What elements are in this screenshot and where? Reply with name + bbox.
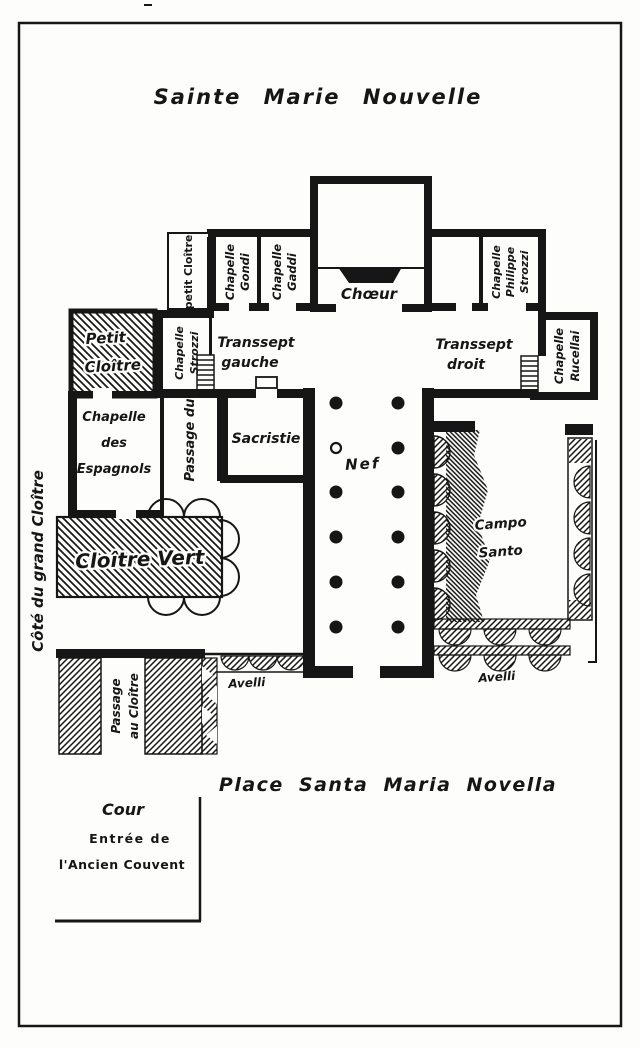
label-place: Place Santa Maria Novella — [219, 774, 557, 796]
chapelle-rucellai: Chapelle Rucellai — [521, 312, 598, 400]
passage-du-corridor: Passage du — [183, 397, 220, 481]
left-chapels: petit Cloître Chapelle Gondi Chapelle Ga… — [168, 229, 312, 311]
avelli-vertical-strip — [202, 658, 217, 754]
campo-santo: Campo Santo Avelli — [428, 421, 596, 685]
cour-entree: Cour Entrée de l'Ancien Couvent — [55, 797, 201, 921]
label-sacristie: Sacristie — [232, 431, 301, 447]
label-avelli-right: Avelli — [477, 669, 517, 686]
transept: Chapelle Strozzi Transsept gauche Transs… — [154, 310, 538, 398]
plan-title: Sainte Marie Nouvelle — [154, 85, 483, 109]
label-chapelle-rucellai-1: Chapelle — [552, 328, 566, 384]
open-pillar — [331, 443, 341, 453]
label-campo-santo-1: Campo — [474, 514, 527, 534]
label-cote-grand-cloitre: Côté du grand Cloître — [29, 470, 47, 652]
label-espagnols-2: des — [101, 436, 127, 451]
label-espagnols-1: Chapelle — [82, 410, 146, 425]
label-chapelle-philippe-strozzi-1: Chapelle — [490, 245, 503, 299]
avelli-left-row — [205, 654, 305, 672]
door-bump — [256, 377, 277, 388]
rucellai-stairs — [521, 356, 538, 392]
label-petit-cloitre-top: petit Cloître — [182, 235, 195, 310]
label-chapelle-strozzi-2: Strozzi — [188, 331, 201, 374]
label-chapelle-philippe-strozzi-3: Strozzi — [518, 250, 531, 293]
label-chapelle-strozzi-1: Chapelle — [173, 326, 186, 380]
nave-pillars — [330, 397, 405, 634]
label-nef: Nef — [345, 454, 382, 474]
chapelle-espagnols: Chapelle des Espagnols — [68, 396, 164, 519]
right-chapels: Chapelle Philippe Strozzi — [432, 229, 546, 312]
choir: Chœur — [310, 176, 432, 312]
label-passage-au-cloitre-2: au Cloître — [127, 673, 141, 739]
door-notch — [93, 388, 112, 400]
avelli-bottom-rows — [434, 619, 570, 671]
nave: Nef — [303, 388, 434, 678]
label-ancien-couvent: l'Ancien Couvent — [59, 857, 185, 872]
door-gap — [256, 388, 277, 399]
label-transsept-gauche-2: gauche — [221, 355, 278, 371]
label-espagnols-3: Espagnols — [77, 462, 152, 477]
label-chapelle-gaddi-1: Chapelle — [270, 244, 284, 300]
plan-figure: Sainte Marie Nouvelle Cloître Vert Chœur… — [0, 0, 640, 1048]
label-chapelle-gondi-2: Gondi — [238, 252, 252, 291]
label-entree: Entrée de — [89, 831, 171, 846]
label-transsept-gauche-1: Transsept — [217, 335, 296, 351]
label-cloitre-vert: Cloître Vert — [75, 545, 206, 574]
passage-au-cloitre-area: Passage au Cloître Avelli — [56, 649, 305, 754]
hatched-block-left — [59, 658, 101, 754]
label-choeur: Chœur — [341, 285, 399, 303]
label-chapelle-rucellai-2: Rucellai — [568, 330, 582, 382]
label-petit-cloitre-1: Petit — [85, 328, 127, 348]
label-passage-du: Passage du — [183, 399, 198, 482]
label-chapelle-philippe-strozzi-2: Philippe — [504, 246, 517, 297]
label-avelli-left: Avelli — [227, 675, 266, 691]
label-transsept-droit-2: droit — [447, 357, 486, 373]
cloitre-vert: Cloître Vert — [57, 517, 222, 597]
altar — [338, 267, 402, 283]
label-petit-cloitre-2: Cloître — [84, 356, 141, 377]
petit-cloitre: Petit Cloître — [68, 311, 158, 400]
label-cour: Cour — [102, 800, 145, 819]
label-passage-au-cloitre-1: Passage — [109, 678, 123, 733]
label-campo-santo-2: Santo — [478, 542, 523, 561]
door-notch — [116, 508, 136, 519]
avelli-right-bar — [568, 438, 592, 620]
hatched-block-right — [145, 658, 202, 754]
label-transsept-droit-1: Transsept — [435, 337, 514, 353]
label-chapelle-gaddi-2: Gaddi — [285, 252, 299, 291]
label-chapelle-gondi-1: Chapelle — [223, 244, 237, 300]
floor-plan-svg: Sainte Marie Nouvelle Cloître Vert Chœur… — [0, 0, 640, 1048]
